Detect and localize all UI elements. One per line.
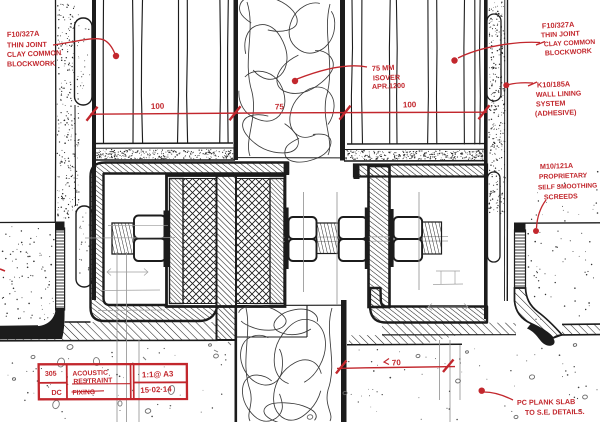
svg-text:75: 75 bbox=[275, 102, 285, 111]
svg-text:CLAY COMMON: CLAY COMMON bbox=[7, 48, 62, 59]
svg-text:305: 305 bbox=[45, 371, 57, 378]
svg-text:M10/121A: M10/121A bbox=[540, 161, 573, 171]
svg-text:F10/327A: F10/327A bbox=[542, 20, 576, 31]
svg-text:75 MM: 75 MM bbox=[372, 63, 395, 73]
svg-text:70: 70 bbox=[392, 358, 402, 367]
svg-text:(ADHESIVE): (ADHESIVE) bbox=[535, 108, 577, 118]
svg-text:K10/185A: K10/185A bbox=[537, 79, 571, 89]
svg-text:15·02·14: 15·02·14 bbox=[140, 384, 172, 395]
svg-text:ACOUSTIC: ACOUSTIC bbox=[72, 370, 108, 378]
svg-text:SCREEDS: SCREEDS bbox=[544, 193, 578, 201]
svg-text:SYSTEM: SYSTEM bbox=[536, 98, 566, 108]
svg-text:TO S.E. DETAILS.: TO S.E. DETAILS. bbox=[525, 407, 585, 417]
svg-text:F10/327A: F10/327A bbox=[7, 29, 40, 39]
svg-text:FIXING: FIXING bbox=[72, 389, 95, 397]
svg-text:100: 100 bbox=[151, 102, 165, 111]
svg-text:BLOCKWORK: BLOCKWORK bbox=[7, 59, 56, 69]
svg-text:1:1@ A3: 1:1@ A3 bbox=[142, 369, 174, 379]
svg-text:RESTRAINT: RESTRAINT bbox=[73, 377, 113, 385]
svg-text:DC: DC bbox=[51, 388, 62, 397]
svg-text:100: 100 bbox=[403, 100, 417, 109]
svg-text:APR.1200: APR.1200 bbox=[372, 81, 405, 91]
svg-text:PC PLANK SLAB: PC PLANK SLAB bbox=[517, 397, 575, 407]
